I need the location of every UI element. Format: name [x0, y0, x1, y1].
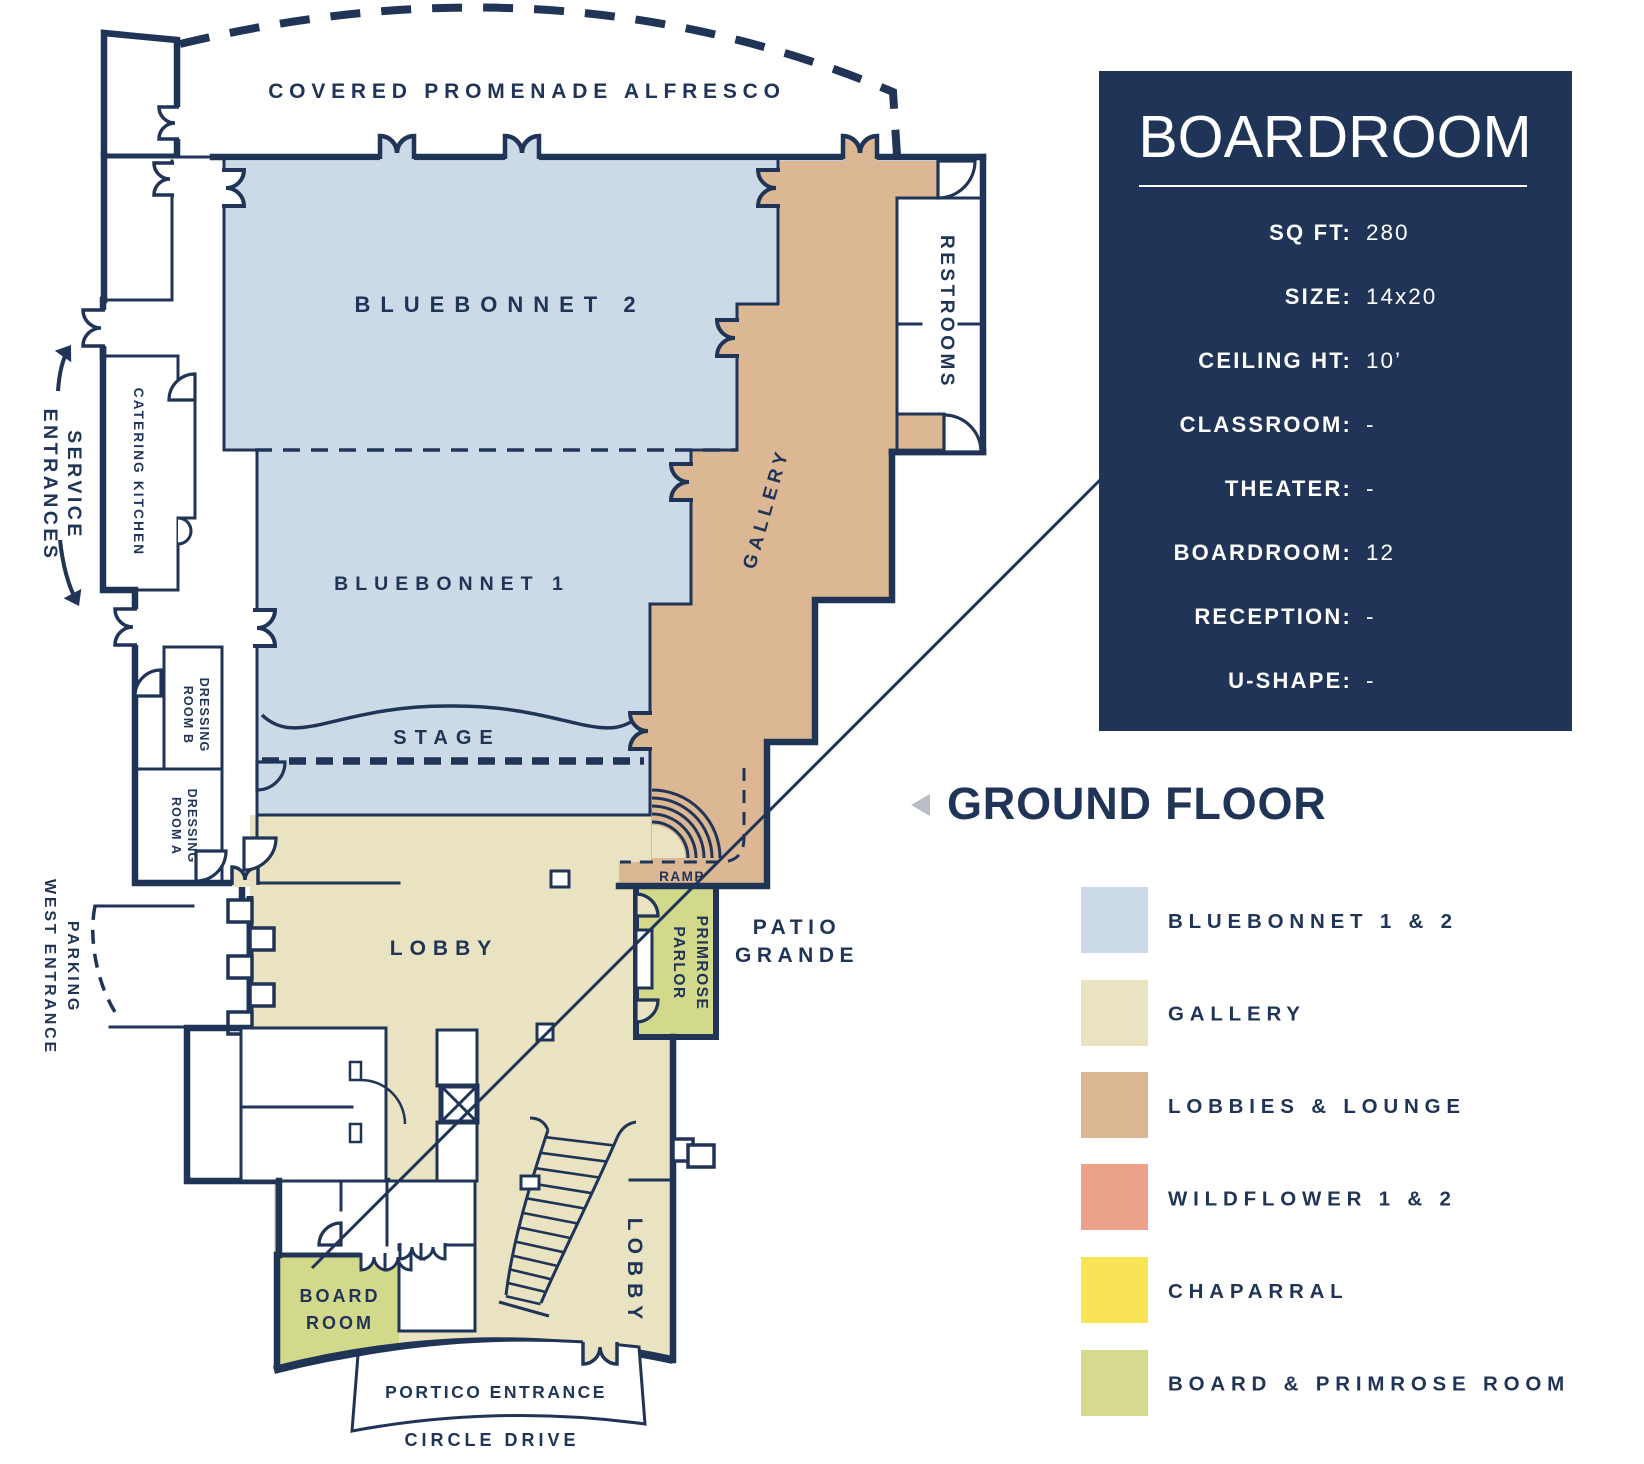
svg-text:GRANDE: GRANDE: [735, 944, 859, 967]
svg-text:BOARDROOM:: BOARDROOM:: [1174, 540, 1352, 565]
svg-text:COVERED PROMENADE ALFRESCO: COVERED PROMENADE ALFRESCO: [268, 80, 786, 103]
svg-text:PARLOR: PARLOR: [670, 926, 687, 999]
svg-text:WEST ENTRANCE: WEST ENTRANCE: [41, 879, 58, 1055]
svg-text:BOARD: BOARD: [300, 1286, 381, 1306]
svg-text:DRESSING: DRESSING: [185, 789, 199, 864]
svg-text:SERVICE: SERVICE: [63, 430, 85, 540]
svg-text:GROUND FLOOR: GROUND FLOOR: [947, 778, 1327, 829]
svg-text:ROOM A: ROOM A: [169, 797, 183, 855]
svg-text:GALLERY: GALLERY: [1168, 1003, 1306, 1026]
svg-text:-: -: [1366, 412, 1376, 437]
svg-text:RECEPTION:: RECEPTION:: [1194, 604, 1352, 629]
svg-text:DRESSING: DRESSING: [197, 678, 211, 753]
svg-text:-: -: [1366, 668, 1376, 693]
svg-text:CLASSROOM:: CLASSROOM:: [1180, 412, 1352, 437]
svg-text:14x20: 14x20: [1366, 284, 1437, 309]
svg-text:CHAPARRAL: CHAPARRAL: [1168, 1280, 1349, 1303]
svg-text:ROOM B: ROOM B: [181, 686, 195, 745]
svg-text:RESTROOMS: RESTROOMS: [936, 235, 957, 389]
svg-text:PATIO: PATIO: [753, 916, 842, 939]
svg-text:280: 280: [1366, 220, 1410, 245]
svg-text:12: 12: [1366, 540, 1395, 565]
svg-text:BLUEBONNET 1 & 2: BLUEBONNET 1 & 2: [1168, 910, 1458, 933]
svg-text:BLUEBONNET 1: BLUEBONNET 1: [334, 573, 570, 595]
svg-text:CIRCLE DRIVE: CIRCLE DRIVE: [404, 1430, 579, 1450]
svg-text:10’: 10’: [1366, 348, 1402, 373]
svg-text:WILDFLOWER 1 & 2: WILDFLOWER 1 & 2: [1168, 1188, 1457, 1211]
svg-text:PRIMROSE: PRIMROSE: [693, 916, 710, 1011]
svg-text:THEATER:: THEATER:: [1225, 476, 1352, 501]
svg-text:PORTICO ENTRANCE: PORTICO ENTRANCE: [385, 1382, 607, 1402]
svg-text:PARKING: PARKING: [64, 921, 81, 1013]
svg-text:LOBBY: LOBBY: [390, 937, 499, 960]
svg-text:-: -: [1366, 604, 1376, 629]
svg-text:STAGE: STAGE: [393, 727, 500, 749]
svg-text:BOARD & PRIMROSE ROOM: BOARD & PRIMROSE ROOM: [1168, 1373, 1570, 1396]
svg-text:BOARDROOM: BOARDROOM: [1138, 104, 1531, 170]
svg-text:CEILING HT:: CEILING HT:: [1198, 348, 1352, 373]
svg-text:SQ FT:: SQ FT:: [1269, 220, 1352, 245]
svg-text:U-SHAPE:: U-SHAPE:: [1228, 668, 1352, 693]
svg-text:LOBBY: LOBBY: [623, 1218, 646, 1327]
svg-text:-: -: [1366, 476, 1376, 501]
svg-text:ROOM: ROOM: [306, 1313, 374, 1333]
svg-text:LOBBIES & LOUNGE: LOBBIES & LOUNGE: [1168, 1095, 1466, 1118]
svg-text:CATERING KITCHEN: CATERING KITCHEN: [131, 388, 146, 556]
svg-text:SIZE:: SIZE:: [1285, 284, 1352, 309]
svg-text:ENTRANCES: ENTRANCES: [39, 409, 61, 562]
svg-text:BLUEBONNET 2: BLUEBONNET 2: [354, 292, 645, 317]
